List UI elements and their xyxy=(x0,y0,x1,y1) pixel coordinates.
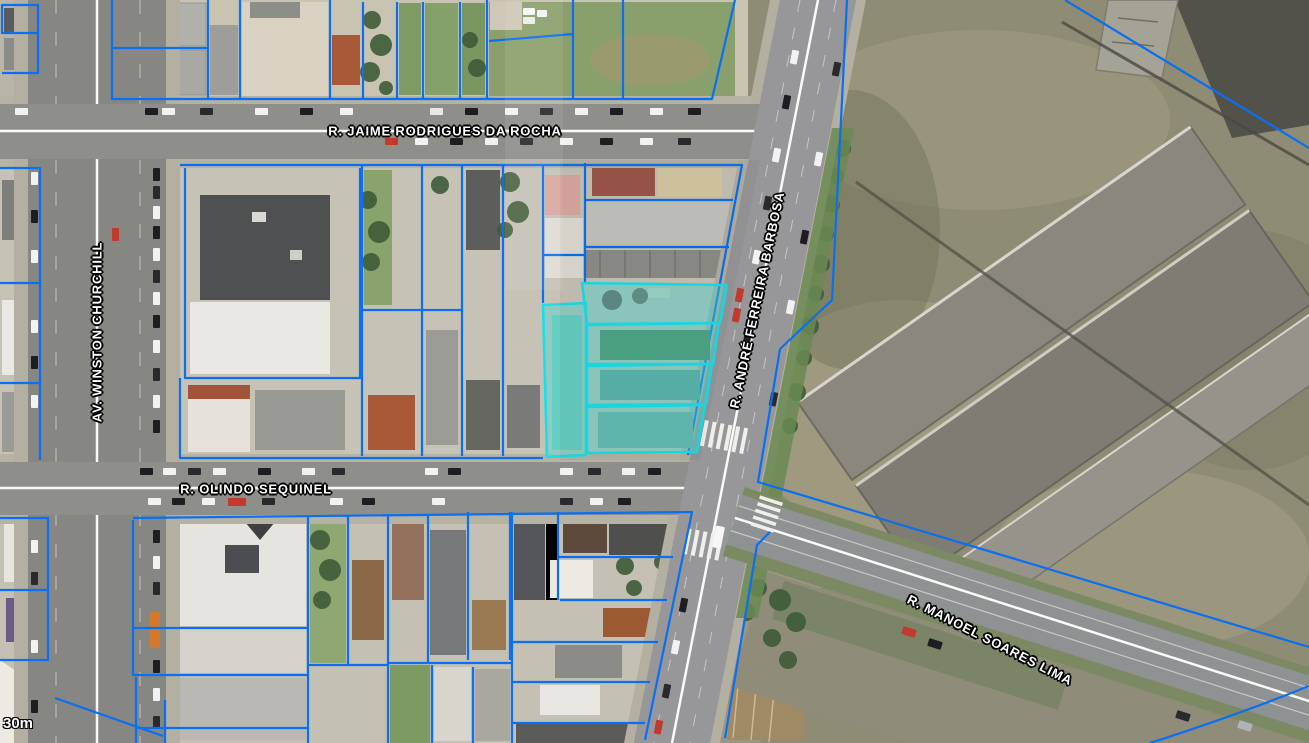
imagery-seam xyxy=(505,0,563,290)
map-canvas[interactable]: R. JAIME RODRIGUES DA ROCHA AV. WINSTON … xyxy=(0,0,1309,743)
scale-bar-label: 30m xyxy=(3,715,33,732)
aerial-imagery xyxy=(0,0,1309,743)
orange-bus xyxy=(150,612,160,648)
